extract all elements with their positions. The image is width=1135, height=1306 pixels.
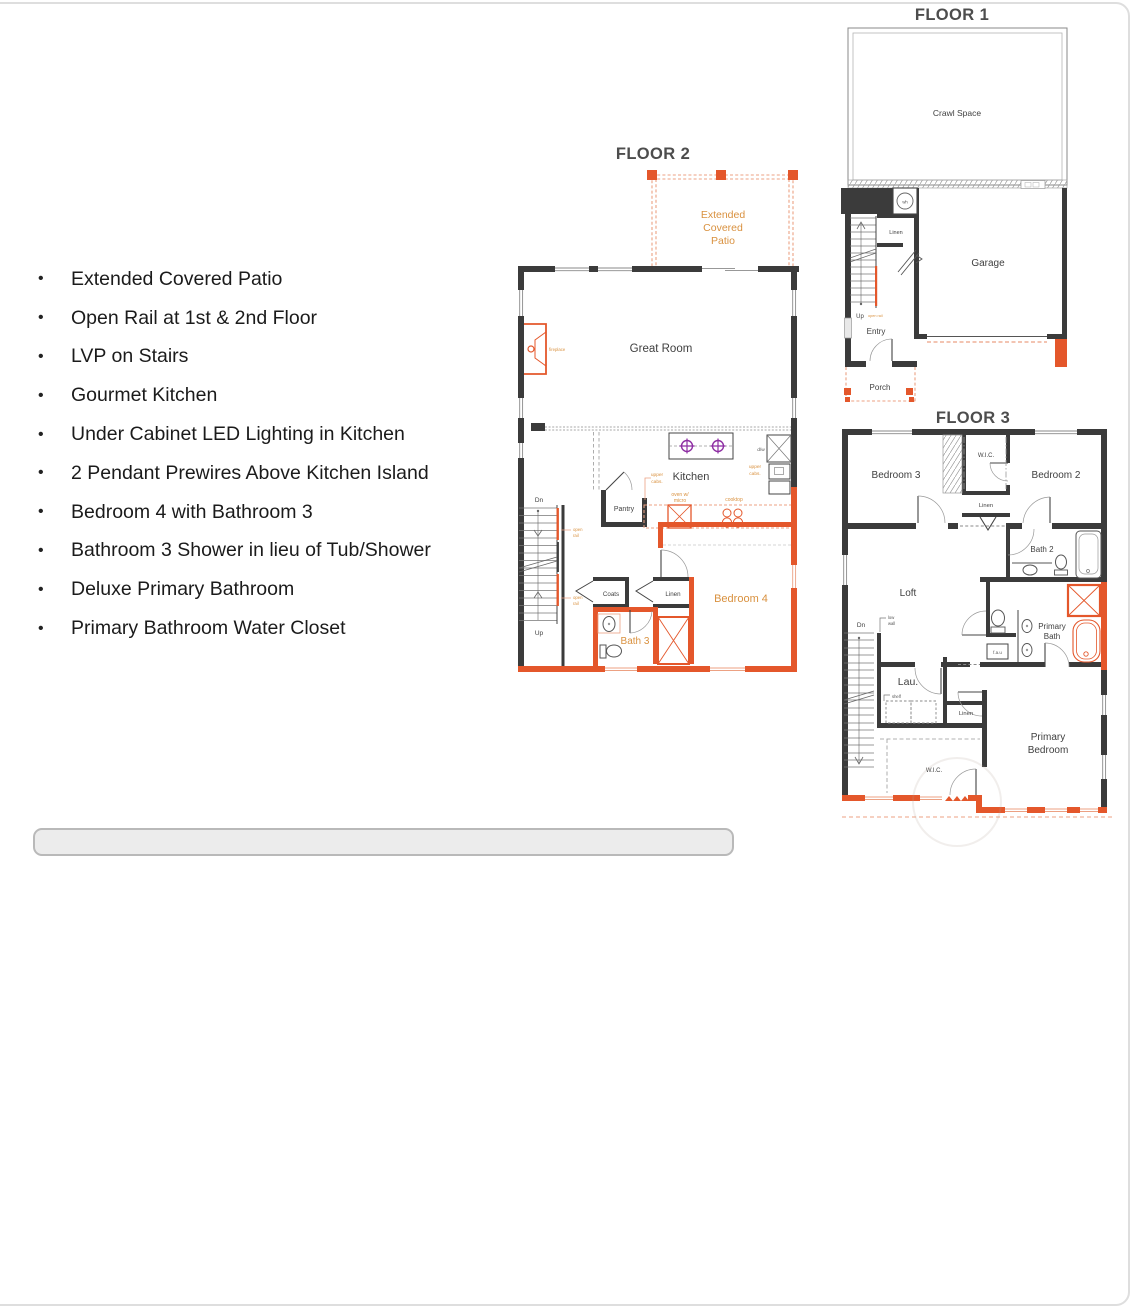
primary-bedroom-label: Primary bbox=[1031, 732, 1065, 743]
feature-text: Gourmet Kitchen bbox=[71, 384, 217, 407]
porch-label: Porch bbox=[870, 383, 891, 392]
open-rail-label: open bbox=[573, 527, 583, 532]
upper-cabs-label: upper bbox=[651, 472, 664, 478]
feature-text: Under Cabinet LED Lighting in Kitchen bbox=[71, 423, 405, 446]
list-item: Under Cabinet LED Lighting in Kitchen bbox=[38, 415, 431, 454]
bullet-icon bbox=[38, 464, 71, 482]
open-rail-label: rail bbox=[573, 601, 579, 606]
great-room-label: Great Room bbox=[630, 343, 693, 355]
bath3-fixtures bbox=[598, 614, 622, 658]
fau-label: f.a.u bbox=[993, 650, 1002, 655]
bath3-label: Bath 3 bbox=[621, 636, 650, 647]
list-item: Gourmet Kitchen bbox=[38, 376, 431, 415]
feature-text: Bathroom 3 Shower in lieu of Tub/Shower bbox=[71, 539, 431, 562]
list-item: LVP on Stairs bbox=[38, 338, 431, 377]
patio-label: Covered bbox=[703, 222, 743, 234]
primary-bath-label: Primary bbox=[1038, 622, 1066, 631]
primary-bath-label: Bath bbox=[1044, 632, 1060, 641]
bedroom2-label: Bedroom 2 bbox=[1032, 470, 1081, 481]
linen-label: Linen bbox=[889, 230, 902, 236]
low-wall-label: wall bbox=[888, 621, 895, 626]
floor1-plan: Crawl Space wh Linen Garage U bbox=[830, 0, 1135, 410]
bullet-icon bbox=[38, 620, 71, 638]
primary-bedroom-label: Bedroom bbox=[1028, 745, 1069, 756]
entry-label: Entry bbox=[867, 327, 886, 336]
floor1-stairs bbox=[850, 216, 877, 308]
upper-cabs-label: cabs. bbox=[651, 479, 662, 485]
list-item: Deluxe Primary Bathroom bbox=[38, 570, 431, 609]
collapsed-card-edge bbox=[33, 828, 734, 856]
feature-text: Open Rail at 1st & 2nd Floor bbox=[71, 307, 317, 330]
bedroom3-label: Bedroom 3 bbox=[872, 470, 921, 481]
option-post bbox=[1055, 339, 1067, 367]
list-item: Open Rail at 1st & 2nd Floor bbox=[38, 299, 431, 338]
low-wall-bracket bbox=[880, 618, 886, 632]
bedroom4-label: Bedroom 4 bbox=[714, 593, 768, 605]
list-item: Bathroom 3 Shower in lieu of Tub/Shower bbox=[38, 532, 431, 571]
floor-transition bbox=[545, 427, 791, 430]
dishwasher-label: d/w bbox=[757, 447, 765, 453]
pantry-label: Pantry bbox=[614, 506, 635, 513]
bullet-icon bbox=[38, 426, 71, 444]
floor2-plan: Extended Covered Patio bbox=[505, 140, 805, 680]
features-list: Extended Covered Patio Open Rail at 1st … bbox=[38, 260, 431, 648]
laundry-label: Lau. bbox=[898, 676, 918, 688]
front-door bbox=[866, 339, 892, 367]
floor3-stairs bbox=[844, 633, 874, 767]
chase-hatch bbox=[943, 435, 962, 493]
feature-text: Deluxe Primary Bathroom bbox=[71, 578, 294, 601]
bullet-icon bbox=[38, 348, 71, 366]
kitchen-cabinets bbox=[767, 435, 791, 494]
bullet-icon bbox=[38, 503, 71, 521]
patio-label: Patio bbox=[711, 235, 735, 247]
bath2-fixtures bbox=[1012, 531, 1101, 578]
list-item: Primary Bathroom Water Closet bbox=[38, 609, 431, 648]
floor2-windows bbox=[518, 266, 798, 459]
open-rail-label: rail bbox=[573, 533, 579, 538]
bullet-icon bbox=[38, 270, 71, 288]
fireplace-label: fireplace bbox=[549, 347, 566, 352]
patio-label: Extended bbox=[701, 209, 746, 221]
list-item: 2 Pendant Prewires Above Kitchen Island bbox=[38, 454, 431, 493]
stairs-dn-label: Dn bbox=[535, 497, 544, 504]
oven-micro-label: micro bbox=[674, 498, 686, 504]
fireplace bbox=[524, 324, 546, 374]
watermark-circle bbox=[912, 757, 1002, 847]
feature-text: Bedroom 4 with Bathroom 3 bbox=[71, 501, 313, 524]
stairs-up-label: Up bbox=[535, 630, 544, 637]
linen-label: Linen bbox=[959, 711, 973, 717]
garage-label: Garage bbox=[971, 258, 1005, 269]
kitchen-label: Kitchen bbox=[673, 471, 710, 483]
open-rail-label: open bbox=[573, 595, 583, 600]
primary-bath-option bbox=[1068, 582, 1107, 670]
coats-label: Coats bbox=[603, 591, 619, 598]
entry-sidelite bbox=[845, 318, 852, 338]
loft-label: Loft bbox=[900, 588, 917, 599]
bullet-icon bbox=[38, 309, 71, 327]
wh-label: wh bbox=[902, 200, 908, 205]
feature-text: 2 Pendant Prewires Above Kitchen Island bbox=[71, 462, 429, 485]
bullet-icon bbox=[38, 581, 71, 599]
laundry-appliances bbox=[886, 701, 936, 723]
linen-label: Linen bbox=[979, 503, 993, 509]
list-item: Extended Covered Patio bbox=[38, 260, 431, 299]
cooktop-label: cooktop bbox=[725, 497, 743, 503]
bath2-label: Bath 2 bbox=[1030, 545, 1054, 554]
wic-label: W.I.C. bbox=[978, 453, 995, 459]
stairs-up-label: Up bbox=[856, 314, 864, 320]
bullet-icon bbox=[38, 542, 71, 560]
floor1-walls bbox=[841, 188, 1067, 367]
open-rail-label: open rail bbox=[868, 314, 883, 318]
garage-door bbox=[927, 334, 1047, 342]
upper-cabs-label: cabs. bbox=[749, 471, 760, 477]
low-wall-label: low bbox=[888, 615, 895, 620]
shelf-label: shelf bbox=[892, 694, 902, 699]
bath3-door bbox=[630, 610, 652, 633]
crawl-space-label: Crawl Space bbox=[933, 108, 981, 118]
shelf-bracket bbox=[884, 695, 890, 701]
feature-text: Extended Covered Patio bbox=[71, 268, 282, 291]
feature-text: Primary Bathroom Water Closet bbox=[71, 617, 346, 640]
upper-cabs-label: upper bbox=[749, 464, 762, 470]
feature-text: LVP on Stairs bbox=[71, 345, 188, 368]
bullet-icon bbox=[38, 387, 71, 405]
open-below-dashes bbox=[594, 432, 600, 490]
list-item: Bedroom 4 with Bathroom 3 bbox=[38, 493, 431, 532]
linen-label: Linen bbox=[665, 591, 681, 598]
stairs-dn-label: Dn bbox=[857, 622, 866, 629]
pantry-door bbox=[606, 472, 632, 490]
